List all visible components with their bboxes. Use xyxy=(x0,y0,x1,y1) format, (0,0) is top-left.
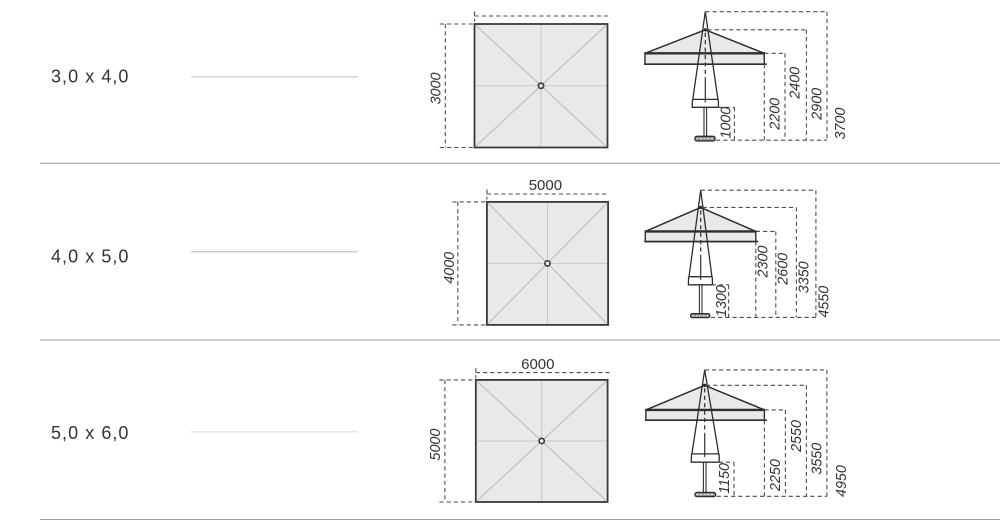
svg-text:2400: 2400 xyxy=(788,67,804,100)
svg-text:2250: 2250 xyxy=(768,459,784,492)
svg-text:1000: 1000 xyxy=(719,107,735,139)
svg-text:2300: 2300 xyxy=(756,246,772,279)
svg-text:3000: 3000 xyxy=(429,73,445,105)
svg-text:2900: 2900 xyxy=(809,88,825,121)
svg-text:2200: 2200 xyxy=(767,98,783,131)
svg-text:1300: 1300 xyxy=(714,285,730,317)
svg-text:5,0 x 6,0: 5,0 x 6,0 xyxy=(51,423,130,443)
svg-text:1150: 1150 xyxy=(717,463,733,494)
svg-text:3350: 3350 xyxy=(796,261,812,293)
svg-text:4950: 4950 xyxy=(834,465,850,497)
svg-text:6000: 6000 xyxy=(521,356,554,373)
svg-text:3550: 3550 xyxy=(810,443,826,475)
svg-text:4,0 x 5,0: 4,0 x 5,0 xyxy=(51,247,130,267)
svg-text:4550: 4550 xyxy=(816,286,832,318)
svg-text:3,0 x 4,0: 3,0 x 4,0 xyxy=(51,67,130,87)
svg-text:2600: 2600 xyxy=(776,253,792,286)
svg-text:4000: 4000 xyxy=(442,252,458,284)
svg-text:2550: 2550 xyxy=(789,420,805,453)
svg-text:5000: 5000 xyxy=(428,429,444,461)
svg-text:5000: 5000 xyxy=(529,177,562,194)
svg-text:3700: 3700 xyxy=(833,108,849,140)
